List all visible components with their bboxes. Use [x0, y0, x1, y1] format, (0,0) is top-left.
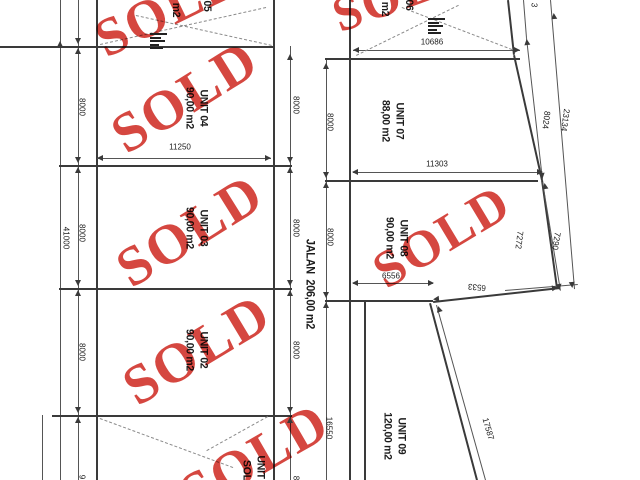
plot-boundary-vline [349, 0, 351, 480]
dimension-arrow [524, 39, 531, 46]
plot-boundary-vline [42, 415, 43, 480]
dimension-arrow [287, 167, 293, 173]
plot-boundary-hline [353, 50, 520, 51]
sold-stamp: SOLD [105, 161, 275, 300]
barcode-icon [150, 33, 167, 51]
dim-41000: 41000 [60, 227, 71, 249]
plot-boundary-vline [364, 302, 366, 480]
dim-fragment: 8 [290, 476, 301, 480]
dim-8000: 8000 [290, 341, 301, 359]
dimension-arrow [323, 63, 329, 69]
dimension-arrow [57, 41, 63, 47]
dimension-arrow [323, 292, 329, 298]
barcode-icon [428, 18, 445, 36]
dimension-arrow [514, 47, 520, 53]
dimension-arrow [552, 285, 559, 292]
plot-boundary-slanted-line [513, 55, 543, 180]
dimension-arrow [287, 290, 293, 296]
dim-8000: 8000 [324, 228, 335, 246]
plot-boundary-slanted-line [523, 0, 527, 38]
plot-boundary-hline [325, 180, 538, 182]
dimension-arrow [539, 173, 546, 180]
dim-17587: 17587 [480, 417, 497, 442]
plot-boundary-hline [59, 165, 292, 167]
dim-10686: 10686 [421, 36, 443, 47]
unit-09-label: UNIT 09 120,00 m2 [380, 412, 409, 459]
dimension-arrow [287, 417, 293, 423]
dimension-arrow [75, 280, 81, 286]
dim-7290: 7290 [549, 231, 563, 250]
dim-8000: 8000 [76, 98, 87, 116]
dim-6533: 6533 [468, 281, 487, 294]
dimension-arrow [287, 407, 293, 413]
plot-boundary-slanted-line [433, 287, 560, 303]
plot-boundary-hline [353, 172, 542, 173]
dimension-arrow [542, 183, 549, 190]
dimension-arrow [75, 290, 81, 296]
plot-boundary-slanted-line [436, 305, 486, 480]
dimension-arrow [551, 13, 558, 20]
dim-11303: 11303 [426, 158, 448, 169]
plot-boundary-hline [97, 158, 271, 159]
plot-boundary-hline [59, 288, 292, 290]
sold-stamp: SOLD [363, 173, 522, 301]
unit-07-label: UNIT 07 88,00 m2 [378, 100, 407, 142]
dimension-arrow [75, 48, 81, 54]
dimension-arrow [287, 157, 293, 163]
dimension-arrow [428, 280, 434, 286]
sold-stamp: SOLD [112, 281, 283, 419]
dim-8000: 8000 [76, 343, 87, 361]
dimension-arrow [287, 280, 293, 286]
dim-fragment: 9 [76, 475, 87, 479]
dimension-arrow [97, 155, 103, 161]
dimension-arrow [323, 302, 329, 308]
dimension-arrow [352, 280, 358, 286]
dimension-arrow [287, 54, 293, 60]
dim-8024: 8024 [539, 110, 552, 129]
dimension-arrow [75, 407, 81, 413]
dim-fragment: 3 [528, 2, 540, 8]
dim-11250: 11250 [169, 141, 191, 152]
dimension-arrow [569, 282, 576, 289]
dimension-arrow [75, 38, 81, 44]
dim-8000: 8000 [76, 224, 87, 242]
plot-boundary-hline [325, 58, 520, 60]
dimension-arrow [433, 296, 440, 303]
dimension-arrow [323, 182, 329, 188]
dimension-arrow [75, 157, 81, 163]
dim-23134: 23134 [558, 108, 572, 132]
sold-stamp: SOLD [170, 390, 341, 480]
site-plan-drawing: UNIT 04 90,00 m2UNIT 03 90,00 m2UNIT 02 … [0, 0, 640, 480]
road-label: JALAN 206,00 m2 [302, 239, 317, 329]
plot-boundary-slanted-line [526, 38, 543, 180]
dim-8000: 8000 [290, 96, 301, 114]
dim-8000: 8000 [324, 113, 335, 131]
dimension-arrow [353, 47, 359, 53]
plot-boundary-vline [96, 0, 98, 480]
plot-boundary-slanted-line [429, 303, 478, 480]
dim-7272: 7272 [512, 230, 525, 249]
dimension-arrow [435, 305, 442, 312]
dimension-arrow [75, 167, 81, 173]
dim-8000: 8000 [290, 219, 301, 237]
dimension-arrow [323, 172, 329, 178]
plot-boundary-vline [273, 0, 275, 480]
plot-boundary-hline [325, 300, 433, 302]
plot-boundary-hline [52, 415, 292, 417]
dimension-arrow [352, 169, 358, 175]
dimension-arrow [75, 417, 81, 423]
dimension-arrow [265, 155, 271, 161]
